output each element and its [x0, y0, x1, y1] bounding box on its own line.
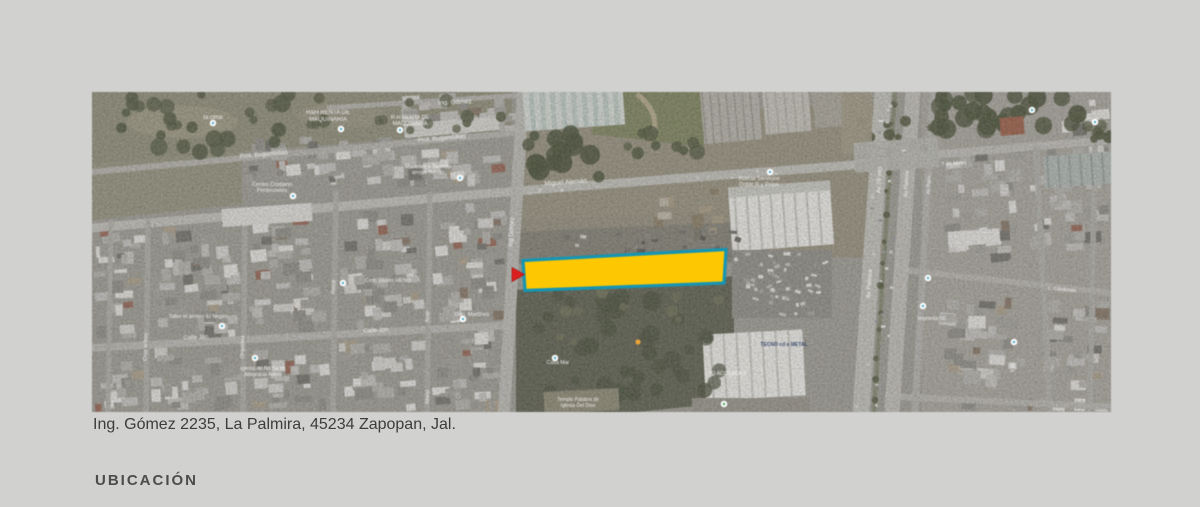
svg-text:MAQUINARIA: MAQUINARIA [393, 121, 428, 127]
svg-text:Azal: Azal [425, 312, 431, 323]
svg-text:Dep. Martínez: Dep. Martínez [455, 312, 490, 318]
svg-text:Cerr. pasen HEND: Cerr. pasen HEND [365, 278, 411, 284]
svg-text:Av Palm: Av Palm [926, 176, 933, 195]
svg-text:Casa Mar: Casa Mar [547, 360, 570, 366]
svg-text:Pentecostés: Pentecostés [257, 188, 288, 194]
svg-text:YO ACCILADAS: YO ACCILADAS [708, 371, 747, 377]
svg-text:Doble R y Polos: Doble R y Polos [739, 182, 779, 188]
svg-text:MAQUINARIA: MAQUINARIA [309, 117, 347, 123]
svg-text:Rosal: Rosal [331, 280, 337, 294]
svg-text:Imprenta SE: Imprenta SE [918, 316, 947, 322]
svg-text:Abeto: Abeto [425, 390, 431, 405]
svg-text:Taller el arroyo El Negro: Taller el arroyo El Negro [169, 314, 228, 320]
svg-text:arroyo hondo: arroyo hondo [412, 170, 444, 176]
svg-text:Altagracia Rifero: Altagracia Rifero [244, 372, 282, 378]
svg-text:Cruz animo: Cruz animo [143, 333, 150, 361]
svg-text:Orquídea: Orquídea [240, 334, 247, 358]
svg-text:TECNO cd e METAL: TECNO cd e METAL [760, 342, 807, 348]
svg-text:Iglesia Del Dios: Iglesia Del Dios [561, 403, 596, 409]
svg-text:5 ta: 5 ta [1010, 363, 1016, 372]
svg-text:R&H RENTA DE: R&H RENTA DE [306, 110, 350, 116]
